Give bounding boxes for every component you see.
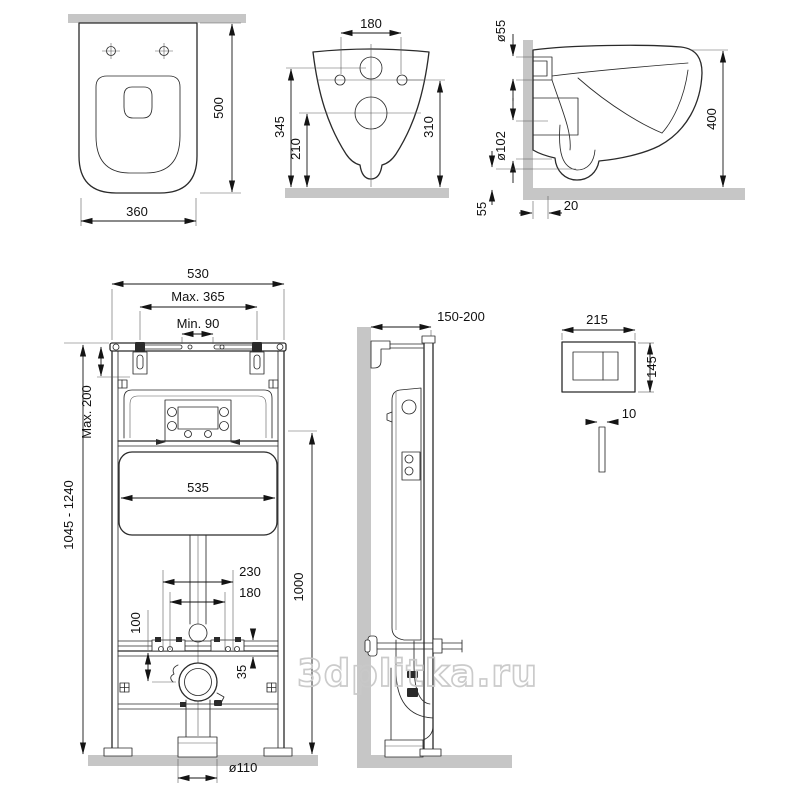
toilet-back-view: 180 345 210 310 xyxy=(272,16,449,198)
hanger-bolt xyxy=(135,342,145,352)
dim-frame-width: 530 xyxy=(187,266,209,281)
dim-height: 400 xyxy=(704,108,719,130)
watermark: 3dplitka.ru xyxy=(297,652,538,695)
frame-foot xyxy=(264,748,292,756)
fastener-symbol xyxy=(267,683,276,692)
technical-drawing: 500 360 180 345 210 310 xyxy=(0,0,800,800)
flush-plate-view: 215 145 10 xyxy=(562,312,659,472)
dim-gap-min: Min. 90 xyxy=(177,316,220,331)
frame-foot-side xyxy=(420,749,441,756)
dim-inlet-height: 345 xyxy=(272,116,287,138)
dim-height-range: 1045 - 1240 xyxy=(61,480,76,549)
dim-inlet-diameter: ø55 xyxy=(493,20,508,42)
dim-plate-height: 145 xyxy=(644,356,659,378)
dim-stud-spacing: Max. 365 xyxy=(171,289,224,304)
bowl-profile xyxy=(533,45,702,180)
wall-bracket xyxy=(371,341,390,368)
dim-top-adjust: Max. 200 xyxy=(79,385,94,438)
drawing-canvas: 500 360 180 345 210 310 xyxy=(0,0,800,800)
dim-wall-distance: 150-200 xyxy=(437,309,485,324)
dim-spacing-inner: 180 xyxy=(239,585,261,600)
floor-surface xyxy=(523,188,745,200)
outlet-box-side xyxy=(385,740,423,757)
toilet-top-view: 500 360 xyxy=(68,14,246,226)
dim-outlet-diameter: ø110 xyxy=(229,760,258,775)
hanger-bolt xyxy=(252,342,262,352)
dim-wall-gap: 20 xyxy=(564,198,578,213)
toilet-side-view: ø55 ø102 400 55 20 xyxy=(474,20,745,219)
inlet-connection xyxy=(402,400,416,414)
dim-plate-width: 215 xyxy=(586,312,608,327)
dim-bowl-height: 1000 xyxy=(291,573,306,602)
frame-front-view: 535 35 100 xyxy=(61,266,318,783)
frame-foot xyxy=(104,748,132,756)
dim-drain-diameter: ø102 xyxy=(493,131,508,161)
fastener-symbol xyxy=(120,683,129,692)
floor-surface xyxy=(285,188,449,198)
dim-drain-height: 210 xyxy=(288,138,303,160)
dim-hole-height: 310 xyxy=(421,116,436,138)
dim-drain-offset: 100 xyxy=(128,612,143,634)
dim-hole-spacing: 180 xyxy=(360,16,382,31)
bowl-outline xyxy=(79,23,197,193)
dim-plate-thickness: 10 xyxy=(622,406,636,421)
supply-pipe xyxy=(189,624,207,642)
dim-tank-width: 535 xyxy=(187,480,209,495)
frame-side-view: 150-200 xyxy=(357,309,512,768)
outlet-box xyxy=(178,737,217,757)
dim-depth: 500 xyxy=(211,97,226,119)
dim-bottom-gap: 55 xyxy=(474,202,489,216)
cistern-profile xyxy=(392,388,421,640)
wall-surface xyxy=(68,14,246,23)
flush-plate-side xyxy=(599,427,605,472)
wall-surface xyxy=(357,327,371,768)
flush-mechanism xyxy=(165,400,231,441)
dim-spacing-outer: 230 xyxy=(239,564,261,579)
dim-width: 360 xyxy=(126,204,148,219)
wall-surface xyxy=(523,40,533,188)
dim-rail-height: 35 xyxy=(234,665,249,679)
